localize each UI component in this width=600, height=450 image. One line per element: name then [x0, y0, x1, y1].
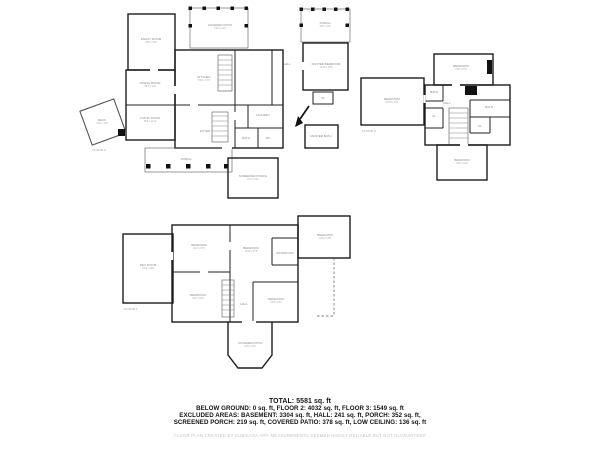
floor3-caption: FLOOR 3 [362, 129, 376, 133]
room-label: CL [321, 96, 325, 100]
room-label: HALL [283, 62, 291, 66]
room-label: BATH [485, 105, 493, 109]
porch-columns-bottom [146, 164, 229, 169]
room-label: LAUNDRY [256, 113, 270, 117]
room-label: REC ROOM16'4 x 22'8 [140, 263, 157, 270]
room-label: BEDROOM14'8 x 12'4 [268, 297, 284, 304]
room-label: BEDROOM19'2 x 15'4 [191, 243, 207, 250]
room-label: COVERED PATIO14'6 x 15'2 [238, 341, 263, 348]
room-label: PORCH16'0 x 11'0 [319, 21, 331, 28]
room-label: BATH [242, 136, 250, 140]
room-label: MASTER BATH [310, 134, 331, 138]
floor-plans-canvas: FAMILY ROOM15'8 x 19'2DINING ROOM15'4 x … [0, 0, 600, 450]
entrance-arrow [300, 106, 309, 119]
room-label: DECK12'0 x 11'6 [96, 118, 108, 125]
room-label: SCREENED PORCH16'4 x 13'2 [239, 174, 267, 181]
room-label: BEDROOM20'10 x 15'4 [384, 97, 400, 104]
summary-block: TOTAL: 5581 sq. ft BELOW GROUND: 0 sq. f… [0, 398, 600, 438]
summary-excluded-2: SCREENED PORCH: 219 sq. ft, COVERED PATI… [0, 419, 600, 426]
disclaimer-text: FLOOR PLAN CREATED BY CUBICASA APP. MEAS… [0, 433, 600, 438]
room-label: BEDROOM19'2 x 16'6 [190, 293, 206, 300]
floor1-caption: FLOOR 1 [124, 307, 138, 311]
floor2-plan: FAMILY ROOM15'8 x 19'2DINING ROOM15'4 x … [80, 7, 350, 199]
room-label: BEDROOM16'6 x 13'8 [317, 233, 333, 240]
floor-plan-sheet: { "page": { "background": "#ffffff", "wa… [0, 0, 600, 450]
floor3-labels: BEDROOM20'10 x 15'4BEDROOM19'8 x 10'2BAT… [362, 64, 493, 165]
room-label: BEDROOM19'8 x 10'2 [453, 64, 469, 71]
room-label: WC [266, 136, 272, 140]
summary-floors: BELOW GROUND: 0 sq. ft, FLOOR 2: 4032 sq… [0, 405, 600, 412]
room-label: CL [478, 124, 482, 128]
room-label: BEDROOM15'6 x 12'0 [454, 158, 470, 165]
room-label: KITCHEN19'6 x 17'2 [197, 75, 210, 82]
room-label: LIVING ROOM15'4 x 11'10 [140, 116, 161, 123]
room-label: MASTER BEDROOM14'10 x 15'6 [312, 62, 341, 69]
room-label: PORCH [181, 157, 192, 161]
room-label: BEDROOM13'10 x 17'8 [243, 246, 259, 253]
floor1-plan: REC ROOM16'4 x 22'8BEDROOM19'2 x 15'4BED… [123, 216, 350, 368]
floor3-plan: BEDROOM20'10 x 15'4BEDROOM19'8 x 10'2BAT… [361, 54, 510, 180]
summary-total: TOTAL: 5581 sq. ft [0, 398, 600, 405]
room-label: FOYER [200, 129, 211, 133]
room-label: FAMILY ROOM15'8 x 19'2 [141, 37, 162, 44]
floor2-caption: FLOOR 2 [92, 148, 106, 152]
floor1-labels: REC ROOM16'4 x 22'8BEDROOM19'2 x 15'4BED… [124, 233, 333, 348]
room-label: BATHROOM [276, 251, 294, 255]
room-label: CL [432, 114, 436, 118]
summary-excluded-1: EXCLUDED AREAS: BASEMENT: 3304 sq. ft, H… [0, 412, 600, 419]
room-label: DINING ROOM15'4 x 11'6 [140, 81, 161, 88]
room-label: COVERED PATIO19'2 x 12'6 [208, 23, 233, 30]
room-label: BATH [430, 90, 438, 94]
room-label: HALL [443, 101, 451, 105]
room-label: HALL [240, 302, 248, 306]
